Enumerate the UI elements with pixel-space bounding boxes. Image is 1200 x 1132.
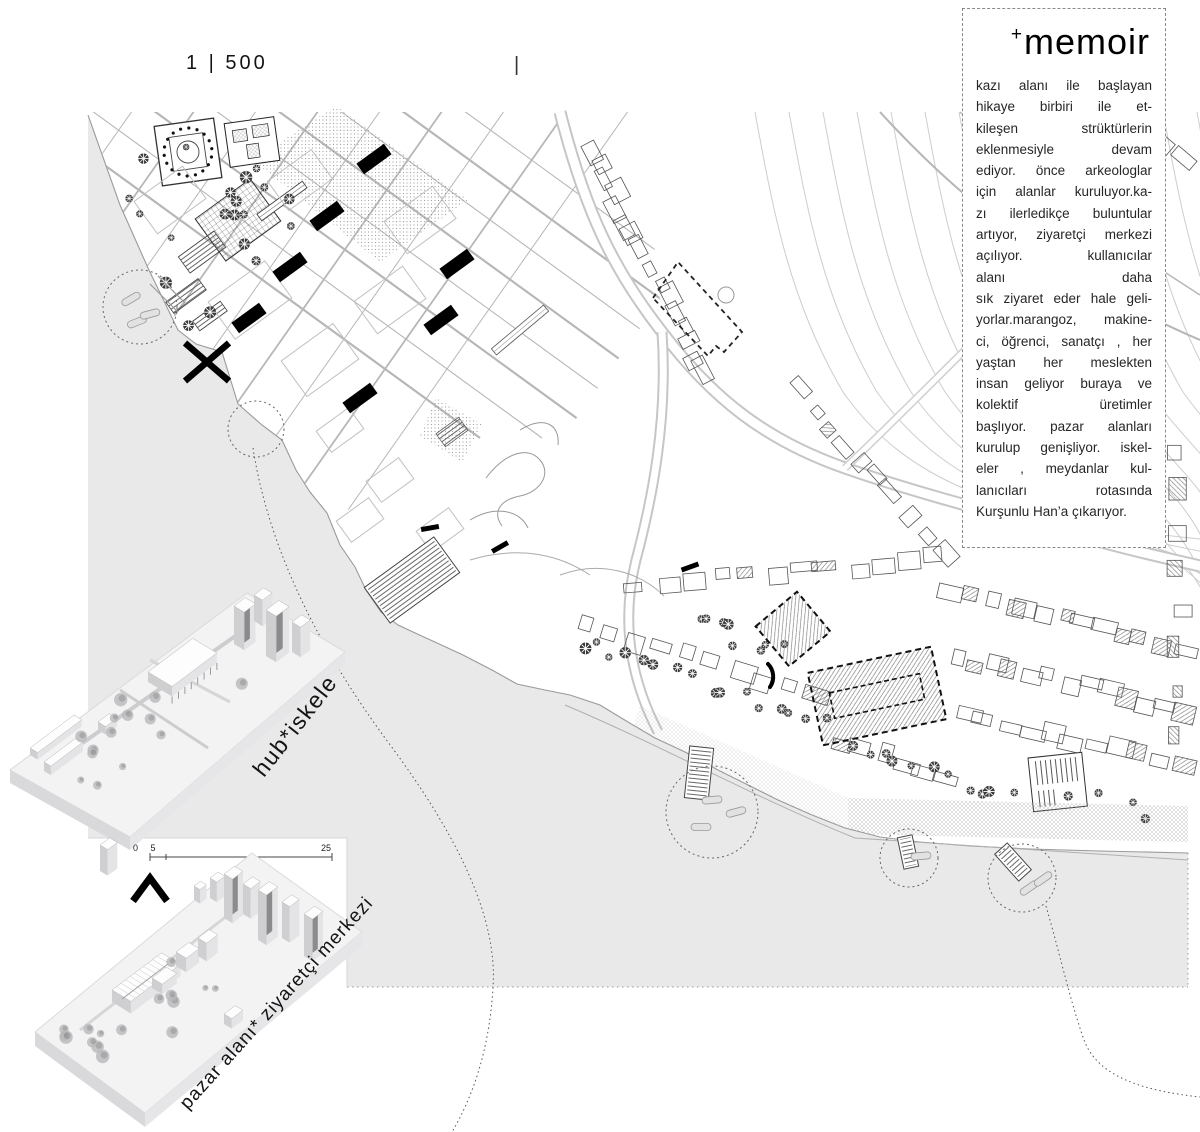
proposed-structure-bar: [342, 383, 377, 414]
boat: [691, 824, 711, 831]
pier: [684, 746, 713, 800]
boat: [911, 852, 932, 861]
scalebar-right-label: 25: [321, 843, 331, 853]
memoir-text-box: +memoir kazıalanıilebaşlayanhikayebirbir…: [962, 8, 1166, 548]
presentation-board: 1 | 500 | hub*iskele pazar alanı* ziyare…: [0, 0, 1200, 1132]
boat: [702, 796, 723, 805]
excavation-house: [224, 117, 280, 168]
proposed-structure-bar: [439, 249, 474, 280]
scalebar-left-label: 0 5: [133, 843, 161, 853]
memoir-title: +memoir: [976, 21, 1150, 63]
dashed-plot: [808, 647, 947, 746]
scale-tick: |: [514, 54, 519, 77]
plus-icon: +: [1011, 24, 1023, 45]
scalebar: [150, 853, 332, 861]
courtyard-building: [154, 118, 222, 186]
dashed-plot: [756, 592, 831, 667]
scale-label: 1 | 500: [186, 52, 268, 75]
north-caret-icon: [133, 878, 167, 901]
memoir-body: kazıalanıilebaşlayanhikayebirbiriileet-k…: [976, 75, 1152, 522]
